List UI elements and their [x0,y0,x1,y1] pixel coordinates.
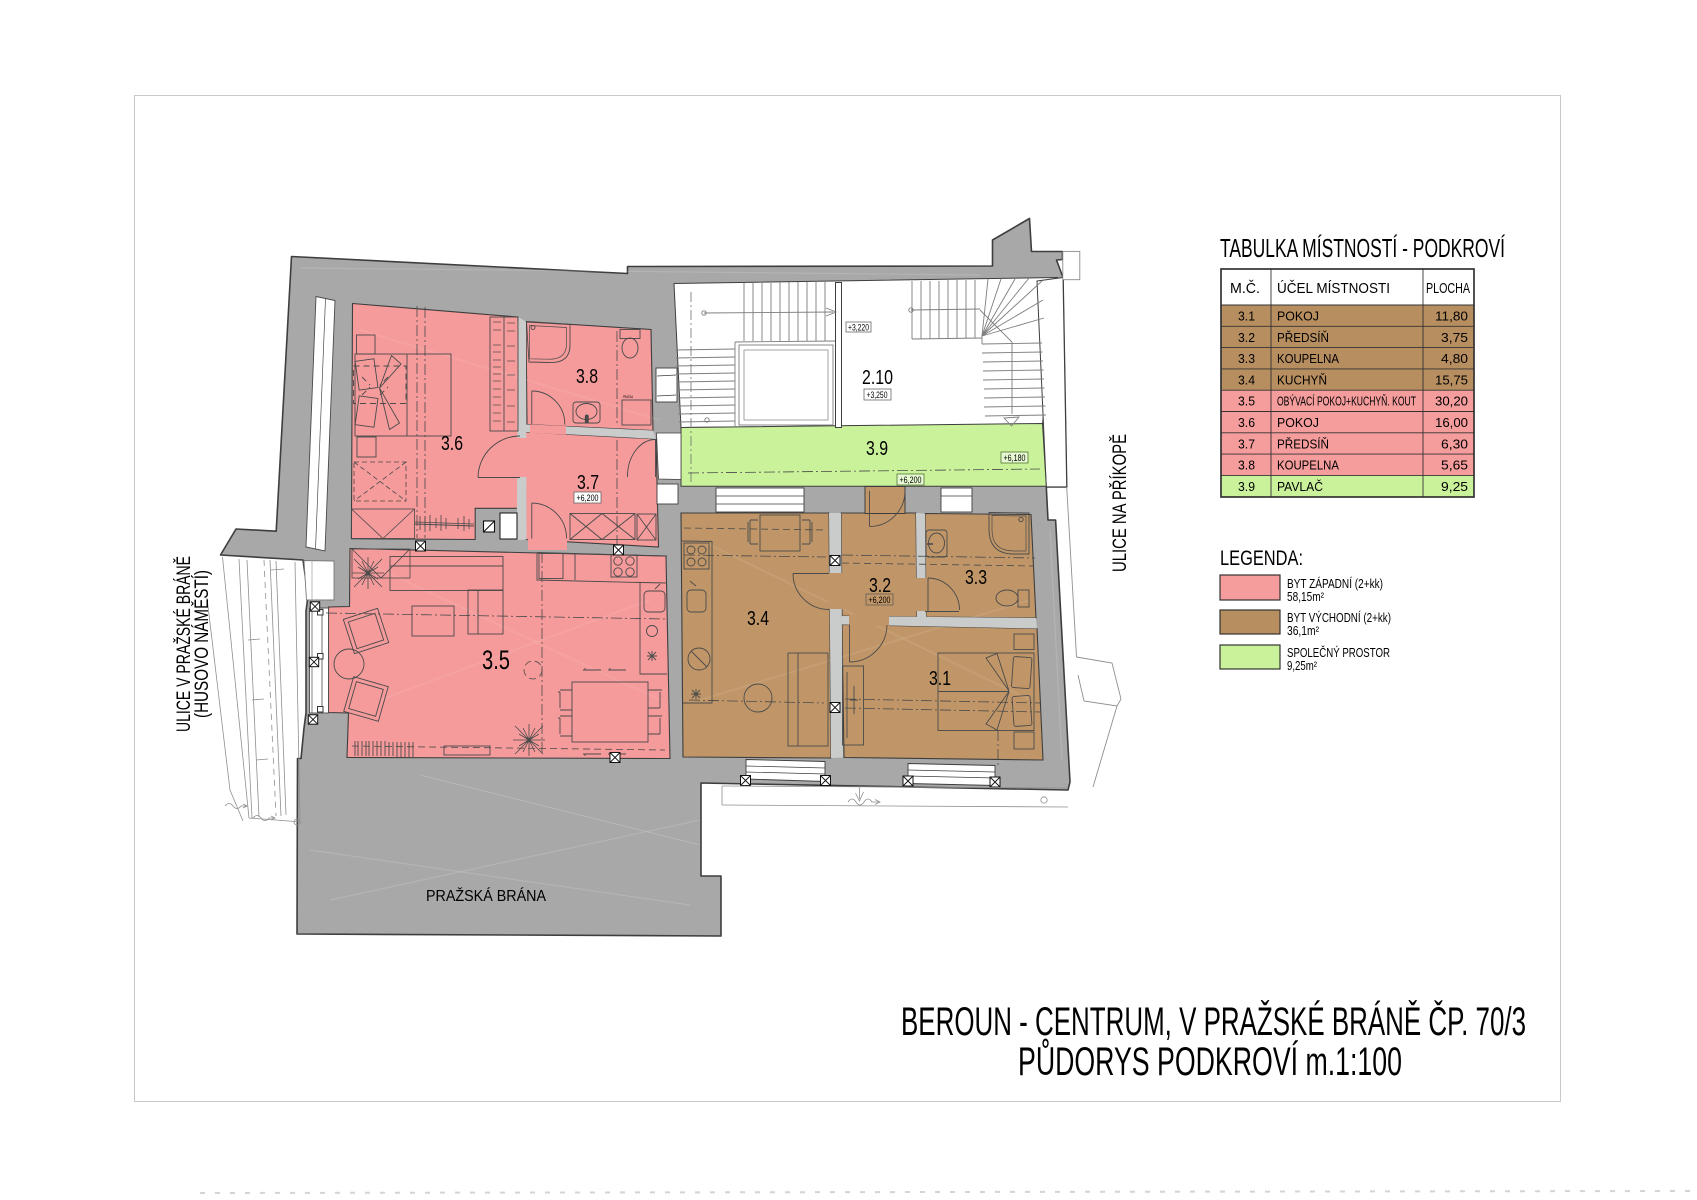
svg-text:+3,220: +3,220 [848,323,869,333]
svg-text:3.9: 3.9 [1238,479,1255,494]
svg-text:9,25: 9,25 [1441,479,1468,494]
svg-text:4,80: 4,80 [1441,351,1468,366]
svg-text:3.1: 3.1 [929,668,951,690]
svg-text:3,75: 3,75 [1441,330,1468,345]
svg-text:TABULKA MÍSTNOSTÍ - PODKROVÍ: TABULKA MÍSTNOSTÍ - PODKROVÍ [1220,233,1506,263]
svg-text:3.3: 3.3 [1238,351,1255,366]
svg-text:PŘEDSÍŇ: PŘEDSÍŇ [1277,330,1329,345]
svg-text:15,75: 15,75 [1435,372,1468,387]
svg-text:KUCHYŇ: KUCHYŇ [1277,372,1327,387]
svg-text:PRAŽSKÁ BRÁNA: PRAŽSKÁ BRÁNA [426,886,546,905]
svg-text:PLOCHA: PLOCHA [1426,280,1470,297]
svg-text:9,25m²: 9,25m² [1287,658,1317,673]
svg-text:3.3: 3.3 [965,567,987,589]
svg-text:2.10: 2.10 [862,367,893,389]
svg-text:3.9: 3.9 [866,438,888,460]
svg-text:POKOJ: POKOJ [1277,415,1319,430]
svg-text:M.Č.: M.Č. [1230,280,1260,297]
svg-text:3.8: 3.8 [1238,458,1255,473]
svg-text:+6,200: +6,200 [869,595,891,605]
svg-text:3.2: 3.2 [1238,330,1255,345]
svg-text:11,80: 11,80 [1435,309,1468,324]
svg-text:3.4: 3.4 [747,608,769,630]
svg-text:3.6: 3.6 [441,433,463,455]
svg-text:3.7: 3.7 [1238,436,1255,451]
svg-text:ÚČEL MÍSTNOSTI: ÚČEL MÍSTNOSTI [1277,280,1390,297]
svg-text:5,65: 5,65 [1441,458,1468,473]
svg-text:+6,200: +6,200 [577,493,599,503]
svg-text:(HUSOVO NÁMĚSTÍ): (HUSOVO NÁMĚSTÍ) [191,570,213,718]
svg-text:PRAČKA: PRAČKA [623,394,633,399]
svg-text:PŮDORYS PODKROVÍ m.1:100: PŮDORYS PODKROVÍ m.1:100 [1018,1037,1402,1084]
svg-text:36,1m²: 36,1m² [1287,623,1320,638]
svg-text:+6,200: +6,200 [900,475,922,485]
svg-text:OBÝVACÍ POKOJ+KUCHYŇ. KOUT: OBÝVACÍ POKOJ+KUCHYŇ. KOUT [1277,394,1416,409]
svg-text:PŘEDSÍŇ: PŘEDSÍŇ [1277,436,1329,451]
svg-text:58,15m²: 58,15m² [1287,589,1325,604]
svg-text:3.4: 3.4 [1238,372,1255,387]
svg-text:KOUPELNA: KOUPELNA [1277,351,1339,366]
svg-text:PAVLAČ: PAVLAČ [1277,479,1323,494]
svg-text:3.7: 3.7 [577,472,599,494]
svg-text:POKOJ: POKOJ [1277,309,1319,324]
svg-text:6,30: 6,30 [1441,436,1468,451]
svg-text:3.5: 3.5 [1238,394,1255,409]
svg-text:+3,250: +3,250 [867,390,888,400]
svg-text:ULICE NA PŘÍKOPĚ: ULICE NA PŘÍKOPĚ [1109,434,1131,572]
svg-text:3.5: 3.5 [482,645,510,675]
svg-text:3.8: 3.8 [576,366,598,388]
svg-text:3.6: 3.6 [1238,415,1255,430]
svg-text:+6,180: +6,180 [1004,453,1026,463]
svg-text:LEGENDA:: LEGENDA: [1220,547,1303,570]
svg-text:30,20: 30,20 [1435,394,1468,409]
svg-text:16,00: 16,00 [1435,415,1468,430]
svg-text:KOUPELNA: KOUPELNA [1277,458,1339,473]
svg-text:3.1: 3.1 [1238,309,1255,324]
svg-text:BEROUN - CENTRUM, V PRAŽSKÉ BR: BEROUN - CENTRUM, V PRAŽSKÉ BRÁNĚ ČP. 70… [901,999,1526,1044]
